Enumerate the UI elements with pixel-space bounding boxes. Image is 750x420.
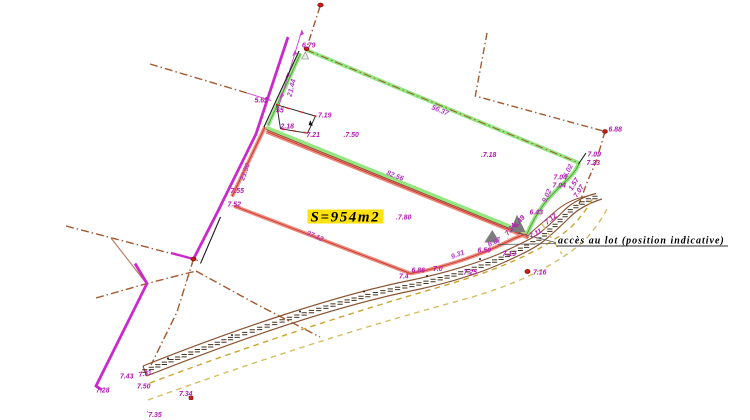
svg-text:7.09: 7.09 — [588, 152, 602, 159]
svg-text:`7.35: `7.35 — [146, 412, 162, 419]
svg-text:7.50: 7.50 — [137, 384, 151, 391]
svg-text:6.79: 6.79 — [302, 43, 316, 50]
svg-text:2.18: 2.18 — [280, 124, 295, 131]
svg-text:7.55: 7.55 — [231, 188, 245, 195]
svg-text:7.0: 7.0 — [433, 266, 443, 273]
svg-text:7.23: 7.23 — [587, 160, 601, 167]
svg-text:7.34: 7.34 — [179, 391, 193, 398]
svg-text:7.13: 7.13 — [503, 251, 517, 258]
svg-text:6.88: 6.88 — [609, 127, 623, 134]
svg-text:7.25: 7.25 — [464, 270, 478, 277]
svg-text:7.4: 7.4 — [399, 274, 409, 281]
svg-text:7.16: 7.16 — [533, 270, 547, 277]
svg-text:.7.80: .7.80 — [396, 215, 411, 222]
svg-text:6.43: 6.43 — [530, 210, 544, 217]
svg-text:55: 55 — [276, 108, 284, 115]
svg-text:.7.18: .7.18 — [481, 152, 496, 159]
svg-text:7.28: 7.28 — [96, 388, 110, 395]
svg-text:7.19: 7.19 — [318, 113, 332, 120]
svg-text:7.43: 7.43 — [120, 374, 134, 381]
svg-text:7.04: 7.04 — [553, 183, 567, 190]
svg-text:.7.50: .7.50 — [344, 132, 359, 139]
svg-text:S=954m2: S=954m2 — [311, 210, 381, 226]
svg-text:7.21: 7.21 — [307, 132, 321, 139]
svg-text:7.52: 7.52 — [228, 202, 242, 209]
svg-text:5.62: 5.62 — [255, 98, 269, 105]
svg-text:6.86: 6.86 — [412, 268, 426, 275]
svg-text:accès au lot (position indicat: accès au lot (position indicative) — [558, 236, 725, 247]
